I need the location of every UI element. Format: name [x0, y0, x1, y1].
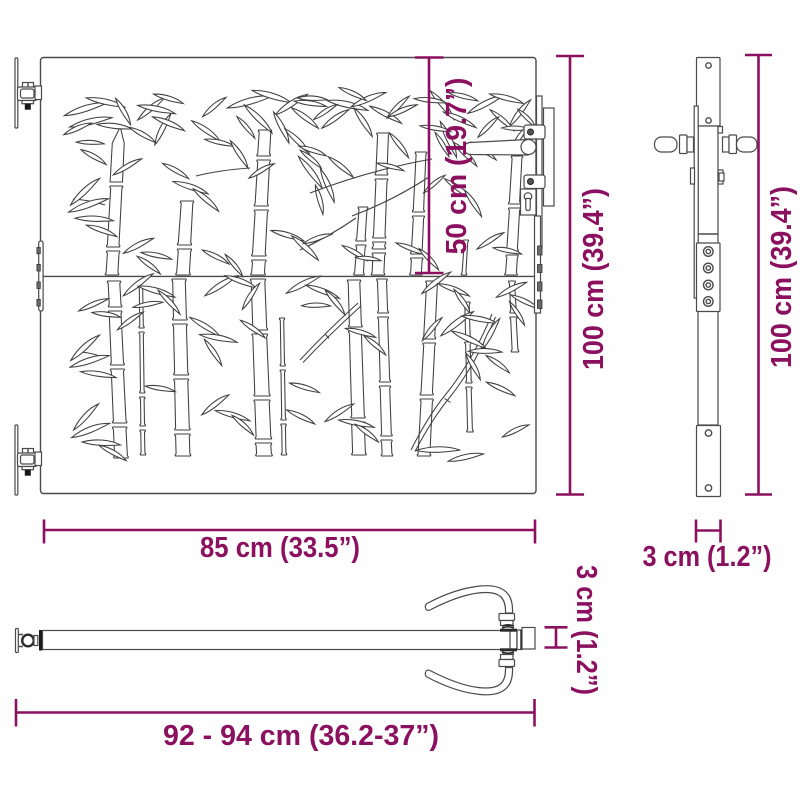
svg-text:85 cm (33.5”): 85 cm (33.5”)	[200, 532, 360, 564]
svg-text:92 - 94 cm (36.2-37”): 92 - 94 cm (36.2-37”)	[163, 720, 439, 752]
svg-text:100 cm (39.4”): 100 cm (39.4”)	[766, 186, 798, 368]
svg-text:50 cm (19.7”): 50 cm (19.7”)	[441, 78, 473, 255]
svg-text:100 cm (39.4”): 100 cm (39.4”)	[578, 188, 610, 370]
svg-text:3 cm (1.2”): 3 cm (1.2”)	[570, 565, 602, 695]
svg-text:3 cm (1.2”): 3 cm (1.2”)	[643, 541, 772, 573]
